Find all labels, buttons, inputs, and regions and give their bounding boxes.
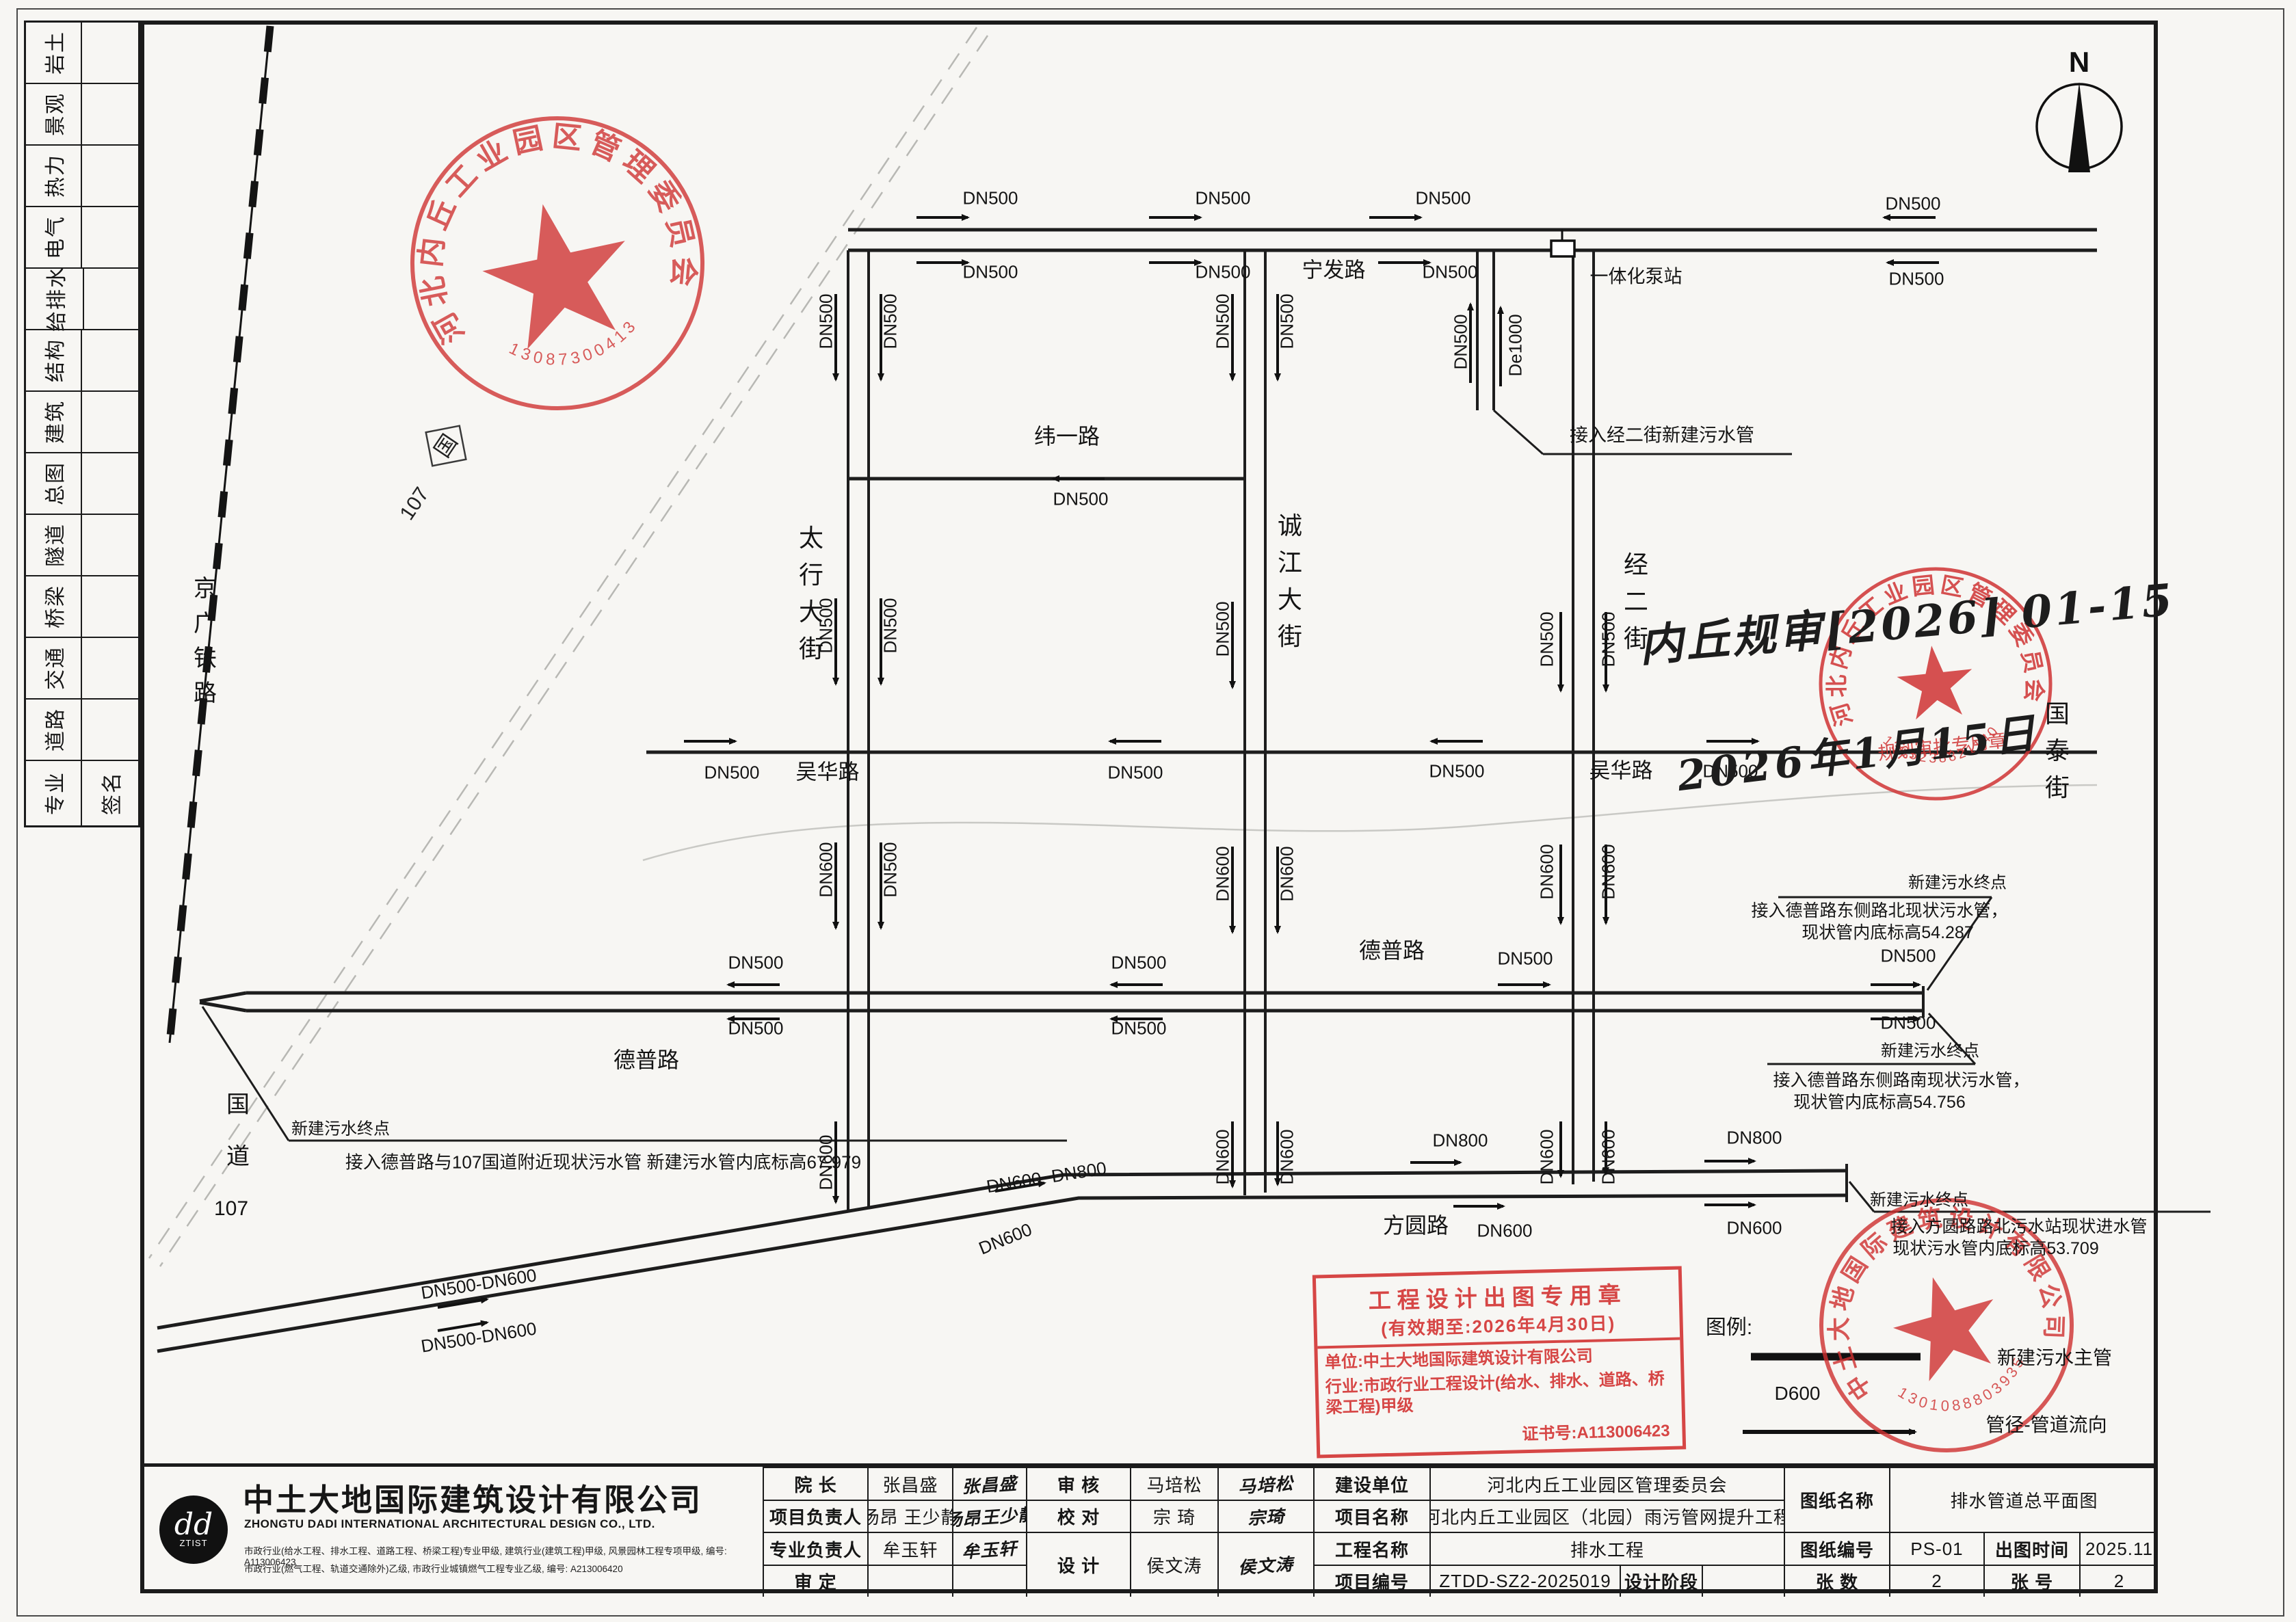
legend-d600: D600 [1775,1383,1821,1405]
title-block: dd ZTIST 中土大地国际建筑设计有限公司 ZHONGTU DADI INT… [140,1463,2158,1593]
committee-stamp-large: 河北内丘工业园区管理委员会 13087300413 [386,92,730,436]
pipe-label: DN500 [1429,761,1485,782]
pipe-label: DN500 [880,294,901,349]
pipe-label: DN500 [1213,602,1234,657]
design-output-stamp: 工程设计出图专用章 (有效期至:2026年4月30日) 单位:中土大地国际建筑设… [1312,1266,1686,1458]
pipe-label: DN500 [1889,269,1944,290]
pipe-label: DN500 [1416,188,1471,209]
street-label-guotai: 国泰街 [2044,695,2071,806]
pipe-label: DN500 [816,294,837,349]
pipe-label: DN500 [1598,612,1620,667]
street-taihang [848,250,869,1212]
tb-value-date: 2025.11 [2079,1532,2158,1565]
pipe-label: DN600 [1537,1130,1558,1185]
pipe-label: DN500 [1498,948,1553,970]
tb-label-pm: 项目负责人 [763,1500,867,1532]
svg-text:国: 国 [430,430,462,462]
note-elev-54756: 现状管内底标高54.756 [1793,1089,1965,1113]
tb-value-sheetname: 排水管道总平面图 [1889,1467,2158,1532]
pipe-label: DN800 [1727,1128,1782,1149]
note-jinger: 接入经二街新建污水管 [1570,421,1754,447]
company-logo: dd ZTIST [159,1495,228,1564]
tb-sign-review: 马培松 [1217,1467,1313,1500]
north-arrow: N [2037,46,2122,172]
tb-value-work: 排水工程 [1429,1532,1784,1565]
tb-label-project: 项目名称 [1313,1500,1429,1532]
tb-label-sheetidx: 张 号 [1983,1565,2079,1597]
road-depu [200,986,1923,1018]
pipe-label: DN500 [1451,315,1472,370]
tb-sign-lead: 牟玉轩 [952,1532,1026,1565]
tb-sign-dean: 张昌盛 [952,1467,1026,1500]
company-name: 中土大地国际建筑设计有限公司 [243,1475,702,1519]
pipe-label: DN500 [1213,294,1234,349]
pipe-label: DN500 [1881,946,1936,967]
pipe-label: DN500 [1108,762,1163,784]
pipe-label: DN600 [1213,1130,1234,1185]
stamp-cert-no: 证书号:A113006423 [1319,1417,1670,1449]
tb-name-approve [867,1565,952,1597]
note-elev-54287: 现状管内底标高54.287 [1802,919,1973,944]
tb-value-sheets: 2 [1889,1565,1983,1597]
scanned-drainage-plan-sheet: { "sign_strip": { "header": ["专业","签名"],… [0,0,2296,1622]
company-name-en: ZHONGTU DADI INTERNATIONAL ARCHITECTURAL… [244,1517,655,1531]
pipe-label: DN500 [1196,262,1251,283]
stamp-unit: 单位:中土大地国际建筑设计有限公司 [1325,1344,1674,1373]
stream-line [643,785,2097,860]
tb-label-client: 建设单位 [1313,1467,1429,1500]
road-label-wuhua: 吴华路 [796,755,860,786]
note-fangyuan: 接入方圆路路北污水站现状进水管 [1890,1213,2147,1238]
svg-text:13087300413: 13087300413 [503,313,648,381]
note-terminal: 新建污水终点 [1870,1186,1968,1210]
pump-station [1551,230,1574,256]
tb-label-dean: 院 长 [763,1467,867,1500]
tb-label-lead: 专业负责人 [763,1532,867,1565]
logo-subtext: ZTIST [179,1538,207,1548]
street-jinger [1573,250,1594,1184]
tb-label-stage: 设计阶段 [1620,1565,1702,1597]
tb-sign-pm: 杨昂王少静 [952,1500,1026,1532]
pipe-label: DN500 [1886,194,1941,215]
pipe-label: DN500 [1053,489,1109,510]
street-label-chengjiang: 诚江大街 [1276,507,1304,655]
g107-number: 107 [395,483,433,524]
tb-label-check: 校 对 [1026,1500,1130,1532]
tb-label-date: 出图时间 [1983,1532,2079,1565]
pipe-label: DN600 [1598,845,1620,900]
pipe-label: DN500 [1537,612,1558,667]
tb-value-projno: ZTDD-SZ2-2025019 [1429,1565,1620,1597]
road-label-fangyuan: 方圆路 [1383,1208,1449,1240]
pipe-label: De1000 [1505,314,1527,376]
pipe-label: DN500 [963,262,1018,283]
g107-shield: 国 [412,412,479,479]
note-elev-53709: 现状污水管内底标高53.709 [1892,1235,2098,1260]
note-terminal: 新建污水终点 [291,1115,390,1139]
street-label-taihang: 太行大街 [797,520,825,667]
tb-sign-design: 侯文涛 [1217,1532,1313,1597]
flow-arrows [438,217,1939,1432]
road-label-depu-2: 德普路 [1359,933,1425,965]
tb-name-dean: 张昌盛 [867,1467,952,1500]
g107-label: 道 [226,1138,250,1171]
tb-name-pm: 杨昂 王少静 [867,1500,952,1532]
logo-glyph: dd [174,1512,213,1538]
tb-label-projno: 项目编号 [1313,1565,1429,1597]
tb-label-work: 工程名称 [1313,1532,1429,1565]
g107-label: 国 [226,1086,250,1119]
pipe-label: DN500 [963,188,1018,209]
note-terminal: 新建污水终点 [1881,1037,1979,1061]
railway-label: 京广铁路 [192,572,219,711]
tb-value-stage [1702,1565,1784,1597]
pipe-label: DN500 [1881,1013,1936,1034]
tb-value-sheetidx: 2 [2079,1565,2158,1597]
tb-value-client: 河北内丘工业园区管理委员会 [1429,1467,1784,1500]
railway-jingguang [170,26,270,1043]
pipe-label: DN600 [1277,1130,1298,1185]
pipe-label: DN600 [1537,845,1558,900]
tb-name-lead: 牟玉轩 [867,1532,952,1565]
pipe-label: DN600 [1277,847,1298,902]
pipe-label: DN600 [1598,1130,1620,1185]
stamp-industry: 行业:市政行业工程设计(给水、排水、道路、桥梁工程)甲级 [1325,1369,1674,1418]
tb-label-sheetno: 图纸编号 [1784,1532,1889,1565]
pipe-label: DN600 [1477,1221,1533,1242]
tb-label-approve: 审 定 [763,1565,867,1597]
note-terminal: 新建污水终点 [1908,869,2007,893]
tb-name-design: 侯文涛 [1130,1532,1217,1597]
note-depu-south: 接入德普路东侧路南现状污水管， [1773,1067,2029,1091]
tb-label-sheetname: 图纸名称 [1784,1467,1889,1532]
road-label-wuhua-2: 吴华路 [1589,754,1653,784]
tb-value-project: 河北内丘工业园区（北园）雨污管网提升工程 [1429,1500,1784,1532]
svg-text:N: N [2069,46,2089,78]
legend-main-pipe: 新建污水主管 [1997,1343,2112,1370]
pipe-label: DN500 [1111,1018,1167,1039]
highway-g107 [149,27,988,1266]
pipe-label: DN500 [728,953,784,974]
company-credential-2: 市政行业(燃气工程、轨道交通除外)乙级, 市政行业城镇燃气工程专业乙级, 编号:… [244,1561,623,1575]
road-label-ningfa: 宁发路 [1302,253,1366,284]
g107-label: 107 [214,1197,248,1221]
pipe-label: DN600 [1213,847,1234,902]
pipe-label: DN500 [1423,262,1478,283]
tb-sign-check: 宗琦 [1217,1500,1313,1532]
company-section: dd ZTIST 中土大地国际建筑设计有限公司 ZHONGTU DADI INT… [140,1467,763,1597]
tb-value-sheetno: PS-01 [1889,1532,1983,1565]
pipe-label: DN500 [1277,294,1298,349]
road-label-weiyi: 纬一路 [1034,419,1100,451]
pipe-label: DN500 [1111,953,1167,974]
tb-name-check: 宗 琦 [1130,1500,1217,1532]
legend-flow: 管径-管道流向 [1985,1410,2107,1437]
road-label-depu: 德普路 [613,1043,679,1074]
pipe-label: DN500 [1196,188,1251,209]
pipe-label: DN600 [1727,1218,1782,1239]
pipe-label: DN500 [728,1018,784,1039]
pipe-label: DN500 [704,762,760,784]
pipe-label: DN800 [1433,1130,1488,1152]
pipe-label: DN500 [880,598,901,654]
road-ningfa [848,230,2097,250]
tb-name-review: 马培松 [1130,1467,1217,1500]
pipe-label: DN600 [816,842,837,898]
note-depu-north: 接入德普路东侧路北现状污水管， [1751,897,2007,922]
tb-label-sheets: 张 数 [1784,1565,1889,1597]
plan-linework: 国 107 N 河北内丘工业园区管理委员会 13087300413 河北内丘工业… [0,0,2296,1622]
note-g107: 接入德普路与107国道附近现状污水管 新建污水管内底标高67.979 [345,1149,861,1174]
pump-station-label: 一体化泵站 [1590,262,1683,289]
tb-label-design: 设 计 [1026,1532,1130,1597]
legend-title: 图例: [1706,1310,1752,1340]
tb-label-review: 审 核 [1026,1467,1130,1500]
pipe-label: DN500 [880,842,901,898]
street-chengjiang [1245,250,1265,1195]
tb-sign-approve [952,1565,1026,1597]
